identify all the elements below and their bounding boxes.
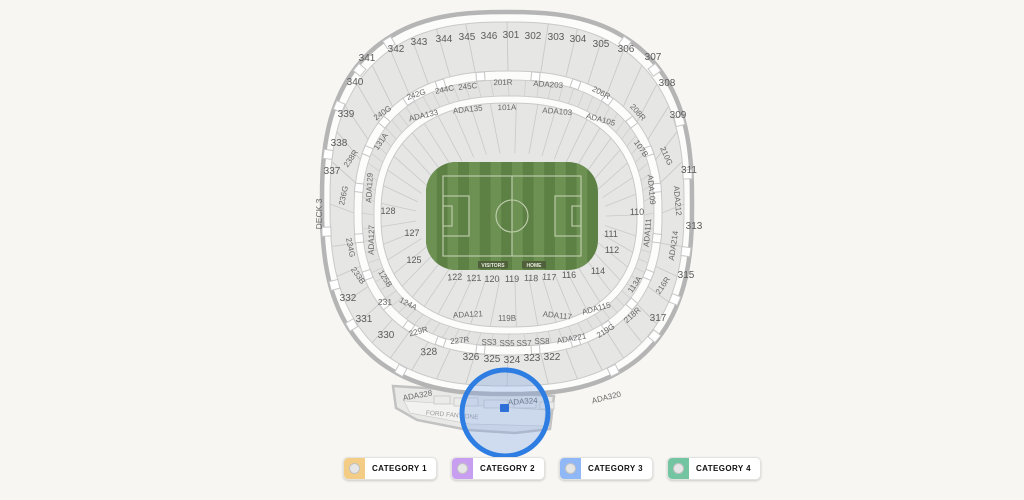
section-label-116[interactable]: 116 [562, 270, 576, 280]
section-label-119b[interactable]: 119B [498, 314, 516, 323]
fan-zone-booth [434, 396, 450, 404]
section-label-ada320[interactable]: ADA320 [591, 389, 623, 405]
section-label-340[interactable]: 340 [347, 77, 364, 88]
legend-radio-icon [349, 463, 360, 474]
section-label-118[interactable]: 118 [524, 273, 539, 283]
section-label-121[interactable]: 121 [466, 273, 481, 284]
section-label-303[interactable]: 303 [548, 32, 565, 43]
section-label-326[interactable]: 326 [463, 352, 480, 363]
section-label-322[interactable]: 322 [544, 352, 561, 363]
legend-radio-icon [457, 463, 468, 474]
section-label-127[interactable]: 127 [404, 228, 419, 238]
section-label-122[interactable]: 122 [447, 271, 463, 282]
section-label-339[interactable]: 339 [338, 109, 355, 120]
section-label-119[interactable]: 119 [505, 274, 519, 284]
section-label-311[interactable]: 311 [681, 165, 697, 176]
section-label-309[interactable]: 309 [670, 110, 687, 121]
legend-item-category-4[interactable]: CATEGORY 4 [667, 457, 761, 480]
section-label-301[interactable]: 301 [503, 30, 520, 41]
visitors-bench-label: VISITORS [481, 263, 505, 269]
section-label-302[interactable]: 302 [525, 31, 542, 42]
section-label-341[interactable]: 341 [359, 53, 376, 64]
section-label-330[interactable]: 330 [378, 330, 395, 341]
legend-label: CATEGORY 2 [473, 464, 544, 473]
section-label-306[interactable]: 306 [618, 44, 635, 55]
section-label-117[interactable]: 117 [542, 272, 557, 283]
section-label-338[interactable]: 338 [331, 138, 348, 149]
legend-label: CATEGORY 1 [365, 464, 436, 473]
selection-overlay [462, 370, 548, 456]
section-label-ss7[interactable]: SS7 [516, 339, 532, 348]
section-label-deck-3[interactable]: DECK 3 [314, 198, 324, 229]
section-label-ss3[interactable]: SS3 [481, 338, 497, 347]
section-label-331[interactable]: 331 [356, 314, 373, 325]
section-label-337[interactable]: 337 [324, 166, 341, 177]
legend-swatch-category-4 [668, 458, 689, 479]
section-label-125[interactable]: 125 [406, 255, 421, 265]
section-label-112[interactable]: 112 [605, 245, 619, 255]
section-label-ada127[interactable]: ADA127 [367, 224, 377, 255]
section-label-344[interactable]: 344 [436, 34, 453, 45]
section-label-328[interactable]: 328 [420, 347, 438, 359]
section-label-343[interactable]: 343 [411, 37, 428, 48]
legend-swatch-category-1 [344, 458, 365, 479]
section-label-346[interactable]: 346 [481, 31, 498, 42]
seatmap-page: VISITORSHOME3413423433443453463013023033… [0, 0, 1024, 500]
section-label-317[interactable]: 317 [650, 313, 667, 324]
legend-label: CATEGORY 3 [581, 464, 652, 473]
section-label-101a[interactable]: 101A [498, 103, 518, 112]
legend-radio-icon [565, 463, 576, 474]
home-bench-label: HOME [527, 263, 543, 269]
soccer-field: VISITORSHOME [426, 162, 609, 270]
section-label-ss8[interactable]: SS8 [534, 337, 550, 346]
section-label-323[interactable]: 323 [524, 353, 541, 364]
legend-item-category-3[interactable]: CATEGORY 3 [559, 457, 653, 480]
section-label-ada121[interactable]: ADA121 [453, 309, 484, 320]
section-label-325[interactable]: 325 [484, 354, 501, 365]
section-label-313[interactable]: 313 [686, 221, 703, 232]
section-label-128[interactable]: 128 [380, 206, 395, 216]
section-label-315[interactable]: 315 [678, 270, 695, 281]
section-label-324[interactable]: 324 [504, 355, 521, 366]
section-label-111[interactable]: 111 [604, 229, 618, 239]
selected-seat-marker [500, 404, 509, 412]
stadium-map[interactable]: VISITORSHOME3413423433443453463013023033… [0, 0, 1024, 500]
legend-swatch-category-2 [452, 458, 473, 479]
section-label-345[interactable]: 345 [459, 32, 476, 43]
legend-item-category-2[interactable]: CATEGORY 2 [451, 457, 545, 480]
section-label-ada129[interactable]: ADA129 [364, 172, 375, 203]
section-label-ss5[interactable]: SS5 [499, 339, 515, 348]
section-label-201r[interactable]: 201R [493, 78, 513, 87]
section-label-305[interactable]: 305 [593, 39, 610, 50]
section-label-114[interactable]: 114 [591, 266, 605, 276]
section-label-231[interactable]: 231 [378, 297, 392, 307]
category-legend: CATEGORY 1CATEGORY 2CATEGORY 3CATEGORY 4 [343, 457, 761, 480]
section-label-307[interactable]: 307 [645, 52, 662, 63]
section-label-110[interactable]: 110 [630, 207, 644, 217]
legend-radio-icon [673, 463, 684, 474]
section-label-120[interactable]: 120 [484, 274, 499, 284]
section-label-308[interactable]: 308 [659, 78, 676, 89]
legend-label: CATEGORY 4 [689, 464, 760, 473]
section-label-332[interactable]: 332 [340, 293, 357, 304]
selection-circle [462, 370, 548, 456]
legend-item-category-1[interactable]: CATEGORY 1 [343, 457, 437, 480]
section-label-304[interactable]: 304 [570, 34, 587, 45]
legend-swatch-category-3 [560, 458, 581, 479]
section-label-342[interactable]: 342 [388, 44, 405, 55]
